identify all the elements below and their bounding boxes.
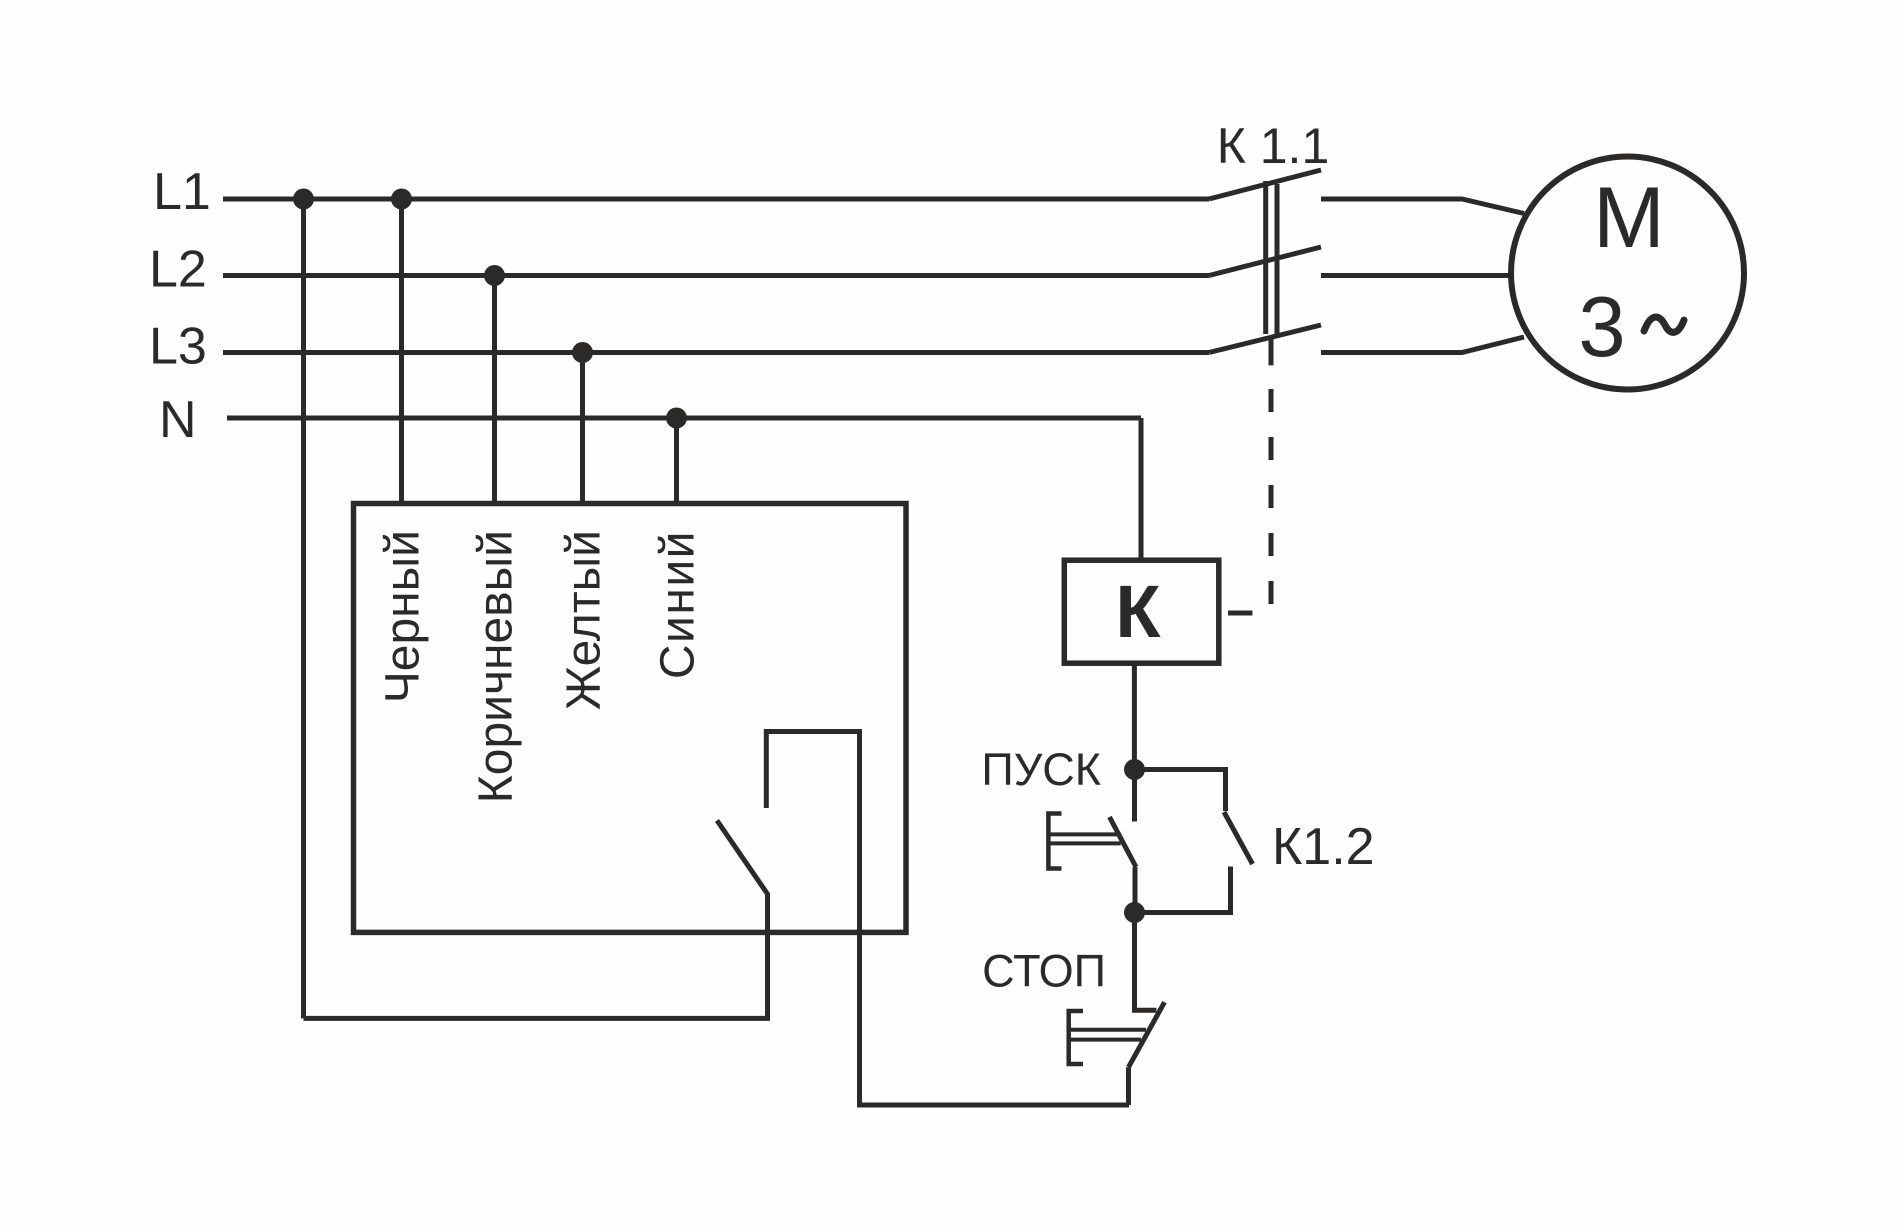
svg-text:3: 3 — [1578, 280, 1625, 375]
svg-text:Желтый: Желтый — [558, 530, 611, 710]
svg-text:М: М — [1593, 170, 1665, 266]
svg-text:Коричневый: Коричневый — [470, 530, 523, 803]
svg-text:Черный: Черный — [377, 530, 430, 703]
svg-text:L1: L1 — [153, 163, 211, 221]
svg-text:К: К — [1115, 570, 1161, 653]
svg-text:L3: L3 — [149, 318, 207, 376]
svg-text:L2: L2 — [149, 241, 207, 299]
svg-text:К 1.1: К 1.1 — [1217, 118, 1330, 174]
svg-text:N: N — [159, 391, 197, 449]
svg-text:ПУСК: ПУСК — [981, 744, 1101, 795]
svg-text:СТОП: СТОП — [982, 946, 1106, 997]
svg-text:Синий: Синий — [652, 530, 705, 679]
svg-text:К1.2: К1.2 — [1272, 818, 1375, 876]
